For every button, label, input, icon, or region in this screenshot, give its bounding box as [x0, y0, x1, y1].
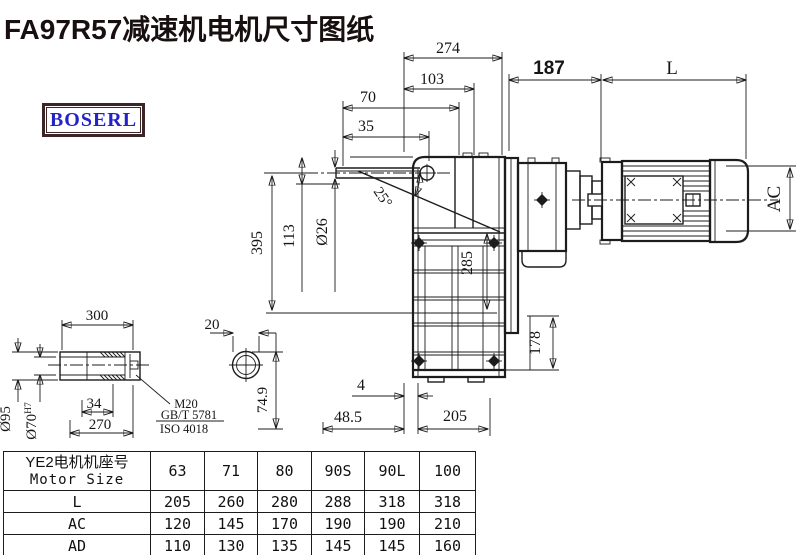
size-col-0: 63	[151, 452, 205, 491]
cell: 145	[205, 513, 258, 535]
cell: 190	[365, 513, 420, 535]
cell: 318	[420, 491, 476, 513]
size-col-1: 71	[205, 452, 258, 491]
cell: 170	[258, 513, 312, 535]
size-col-5: 100	[420, 452, 476, 491]
cell: 288	[312, 491, 365, 513]
drawing-page: FA97R57减速机电机尺寸图纸 BOSERL	[0, 0, 800, 555]
dim-shaft-ext: 70	[360, 89, 376, 106]
dim-base-height: 178	[527, 331, 544, 355]
dim-input-offset: 113	[281, 224, 298, 247]
cell: 205	[151, 491, 205, 513]
cell: 260	[205, 491, 258, 513]
cell: 110	[151, 535, 205, 555]
dim-shaft-len: 300	[86, 308, 109, 324]
dim-case-height: 285	[459, 251, 476, 275]
dim-shaft-bore-dia: Ø70H7	[24, 402, 40, 440]
dim-motor-len: L	[666, 58, 678, 79]
standard-iso: ISO 4018	[160, 422, 208, 436]
row-label: AC	[4, 513, 151, 535]
cell: 130	[205, 535, 258, 555]
table-header-row: YE2电机机座号 Motor Size 63 71 80 90S 90L 100	[4, 452, 476, 491]
cell: 120	[151, 513, 205, 535]
dim-adapter-len: 187	[533, 58, 565, 79]
header-cn: YE2电机机座号	[4, 454, 150, 472]
dim-section-width: 20	[205, 317, 220, 333]
motor-size-table: YE2电机机座号 Motor Size 63 71 80 90S 90L 100…	[3, 451, 476, 555]
dim-inner-width: 103	[420, 71, 444, 88]
dim-shaft-mid: 35	[358, 118, 374, 135]
shaft-detail-view: 300 Ø95 Ø70H7 34 270 M2	[0, 308, 224, 440]
table-header-motor-size: YE2电机机座号 Motor Size	[4, 452, 151, 491]
dim-section-height: 74.9	[255, 387, 271, 413]
cell: 145	[365, 535, 420, 555]
oil-plug-icon	[534, 192, 550, 208]
dim-input-shaft-dia: Ø26	[314, 218, 331, 246]
oil-plug-icon	[486, 235, 502, 251]
cell: 318	[365, 491, 420, 513]
header-en: Motor Size	[4, 472, 150, 488]
thread-hatch	[100, 352, 125, 380]
motor	[588, 158, 710, 244]
dim-total-height: 395	[249, 231, 266, 255]
cell: 280	[258, 491, 312, 513]
dim-shaft-outer-dia: Ø95	[0, 406, 14, 432]
size-col-4: 90L	[365, 452, 420, 491]
size-col-2: 80	[258, 452, 312, 491]
cell: 190	[312, 513, 365, 535]
dimension-lines-left: 395 113 Ø26 25° 285 178	[249, 150, 559, 370]
table-row: AC 120 145 170 190 190 210	[4, 513, 476, 535]
dimension-lines-bottom: 4 48.5 205	[323, 377, 490, 436]
cell: 210	[420, 513, 476, 535]
dim-shaft-bore-len: 270	[89, 417, 112, 433]
row-label: L	[4, 491, 151, 513]
standard-gbt: GB/T 5781	[161, 408, 217, 422]
r57-reducer	[505, 158, 602, 333]
dim-tilt-angle: 25°	[370, 185, 395, 211]
dim-overall-width: 274	[436, 40, 460, 57]
table-row: L 205 260 280 288 318 318	[4, 491, 476, 513]
dim-base-gap: 4	[357, 377, 365, 394]
dim-shaft-step: 34	[87, 396, 103, 412]
cell: 135	[258, 535, 312, 555]
dim-base-offset: 48.5	[334, 409, 362, 426]
cell: 145	[312, 535, 365, 555]
dimension-ac: AC	[726, 166, 796, 231]
cell: 160	[420, 535, 476, 555]
row-label: AD	[4, 535, 151, 555]
dim-base-len: 205	[443, 408, 467, 425]
table-row: AD 110 130 135 145 145 160	[4, 535, 476, 555]
input-shaft	[305, 164, 500, 232]
size-col-3: 90S	[312, 452, 365, 491]
dim-motor-outer-dia: AC	[764, 186, 785, 212]
